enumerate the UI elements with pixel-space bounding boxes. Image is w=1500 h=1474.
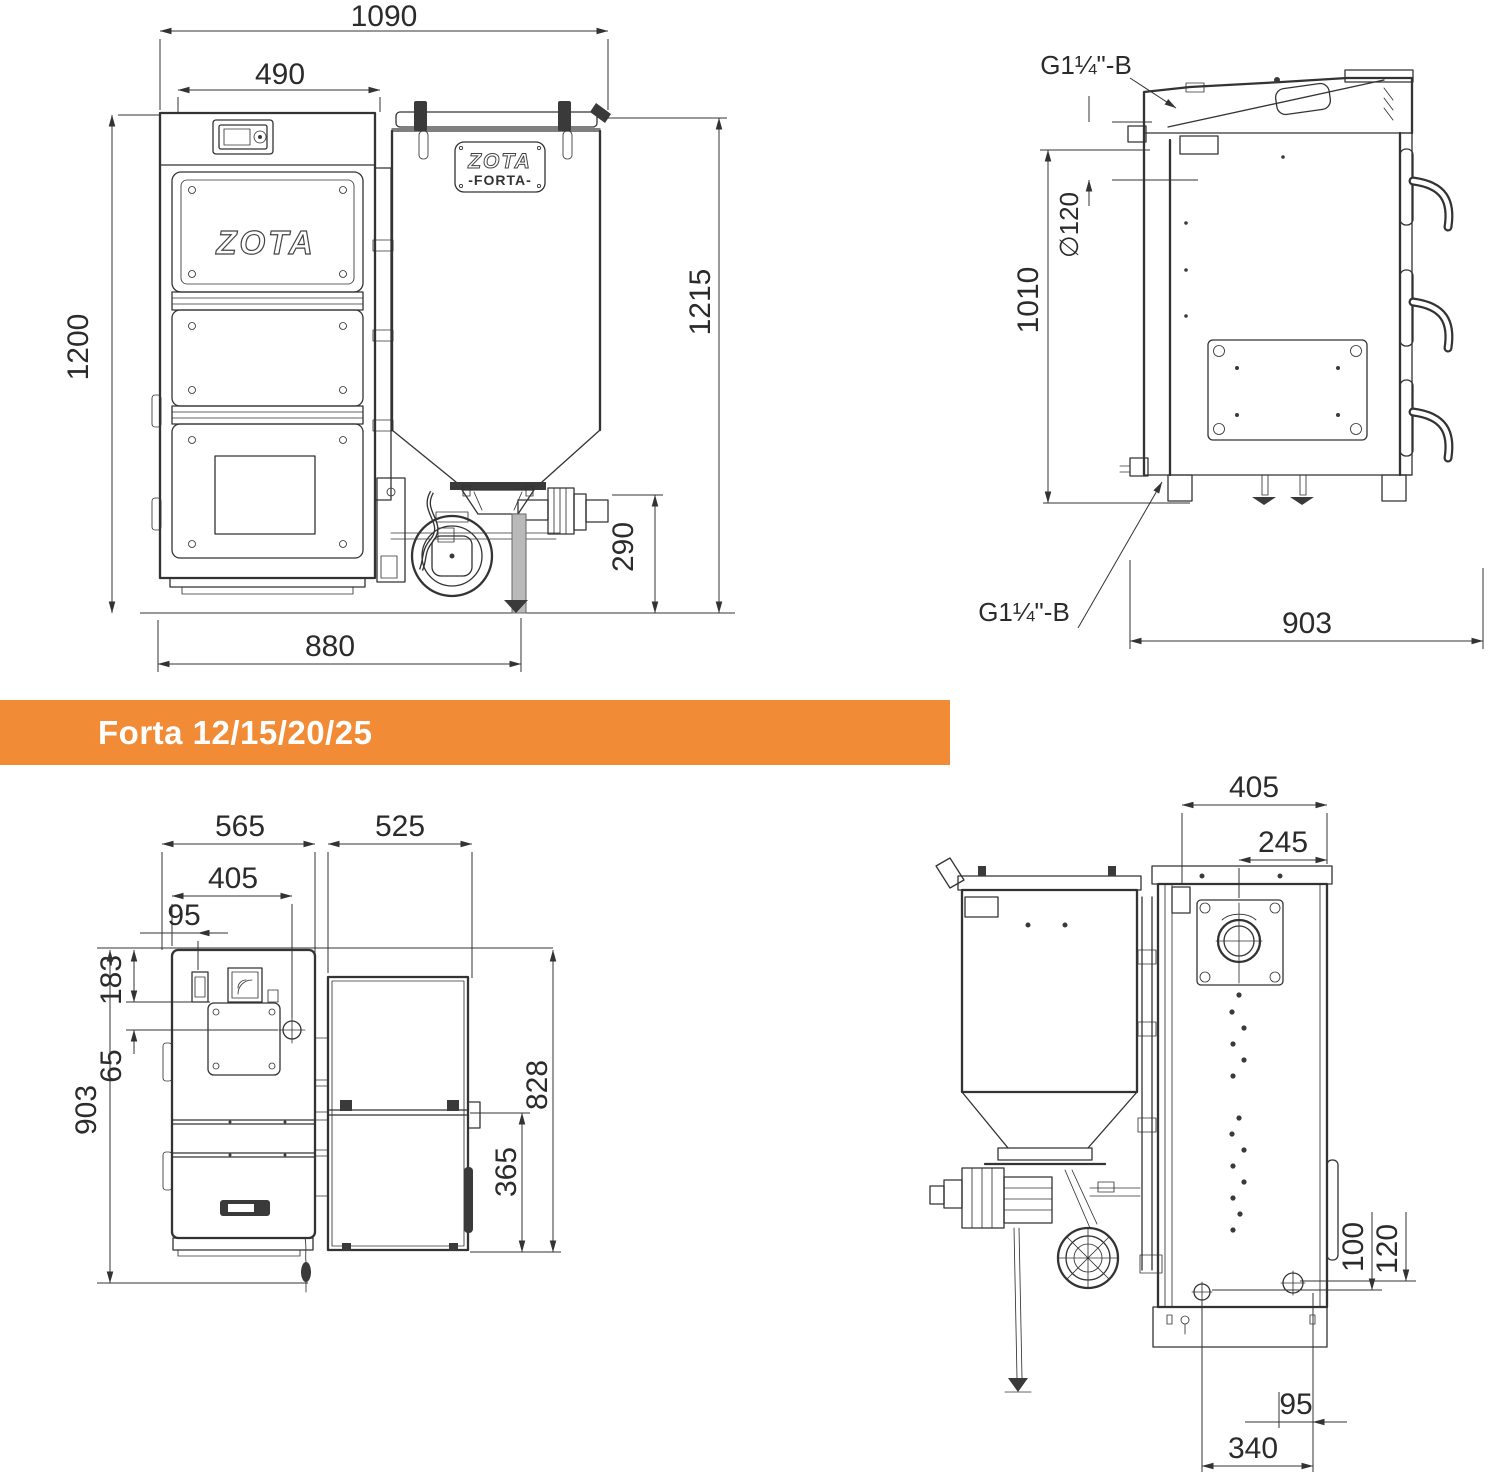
middle-door [172,310,363,406]
door-handles [1400,149,1449,458]
hopper-latch [936,858,964,888]
dim-front-height-left: 1200 [62,314,95,381]
dim-top-panel-offset: 183 [95,955,128,1005]
hopper-hinge-knuckle [468,1102,480,1128]
hopper-brand-plate: ZOTA -FORTA- [455,142,545,192]
anchor-bolts [1192,1271,1305,1302]
dim-side-top-connection: G1¼"-B [1040,50,1132,80]
rear-burner-assembly [930,1168,1140,1392]
dim-front-height-right: 1215 [684,269,717,336]
dim-side-bottom-connection: G1¼"-B [978,597,1070,627]
dim-top-hopper-lid: 365 [490,1147,523,1197]
dim-front-boiler-width: 490 [255,58,305,91]
dim-rear-bolt-height-b: 120 [1371,1224,1404,1274]
dim-side-connection-height: 1010 [1012,267,1045,334]
pellet-drop-duct [512,514,526,613]
rear-flue-plate [1197,900,1283,985]
dim-rear-bolt-spacing: 95 [1279,1388,1312,1421]
rear-access-panel [1208,340,1367,440]
dim-rear-bolt-span: 340 [1228,1432,1278,1465]
rear-boiler [1152,866,1338,1347]
side-boiler-body [1043,70,1449,505]
technical-drawing: ZOTA [0,0,1500,1474]
hopper-side-handle [464,1167,473,1233]
top-hopper [315,977,480,1251]
side-view: G1¼"-B ∅120 1010 G1¼"-B 903 [978,50,1483,649]
dim-top-chimney-offset: 95 [167,899,200,932]
front-dimensions: 1090 490 1200 1215 290 880 [62,0,727,672]
front-door-handle [220,1200,270,1216]
top-view: 565 525 405 95 183 65 903 8 [70,810,561,1292]
dim-top-flue-offset: 405 [208,862,258,895]
dim-rear-bolt-height-a: 100 [1337,1222,1370,1272]
front-view: ZOTA [62,0,735,672]
rear-hopper [936,858,1141,1164]
door-logo: ZOTA [215,224,315,261]
vent-holes [1229,992,1246,1232]
top-flue-outlet [279,1017,305,1043]
burner-assembly [377,478,608,613]
hopper-model-label: -FORTA- [468,172,532,188]
lid-latch [1274,82,1331,115]
return-connection [1130,458,1148,476]
hopper-logo: ZOTA [467,150,532,173]
junction-box [1172,887,1190,913]
rating-label [1180,136,1218,154]
dim-rear-hopper-width: 405 [1229,771,1279,804]
lower-door [172,424,363,558]
dim-rear-flue-offset: 245 [1258,826,1308,859]
top-control-panel [228,968,262,1002]
side-dimensions: G1¼"-B ∅120 1010 G1¼"-B 903 [978,50,1483,649]
dim-top-total-depth: 903 [70,1085,103,1135]
dim-front-burner-height: 290 [607,522,640,572]
drawing-page: Forta 12/15/20/25 [0,0,1500,1474]
dim-top-hopper-depth: 525 [375,810,425,843]
dim-front-base-width: 880 [305,630,355,663]
chimney-stub [192,972,208,1002]
dim-top-hopper-total: 828 [521,1060,554,1110]
rear-fan [1058,1228,1118,1288]
dim-top-flue-edge-offset: 65 [95,1049,128,1082]
dim-side-depth: 903 [1282,607,1332,640]
hopper-label [965,897,998,917]
rear-view: 405 245 100 120 95 340 [930,771,1416,1472]
rear-dimensions: 405 245 100 120 95 340 [1182,771,1416,1472]
dim-front-total-width: 1090 [351,0,418,33]
front-boiler-body: ZOTA [152,113,375,594]
pellet-hopper: ZOTA -FORTA- [392,101,611,490]
upper-door: ZOTA [172,172,363,292]
control-panel [213,120,273,154]
dim-side-flue-diameter: ∅120 [1054,192,1084,258]
dim-top-boiler-depth: 565 [215,810,265,843]
